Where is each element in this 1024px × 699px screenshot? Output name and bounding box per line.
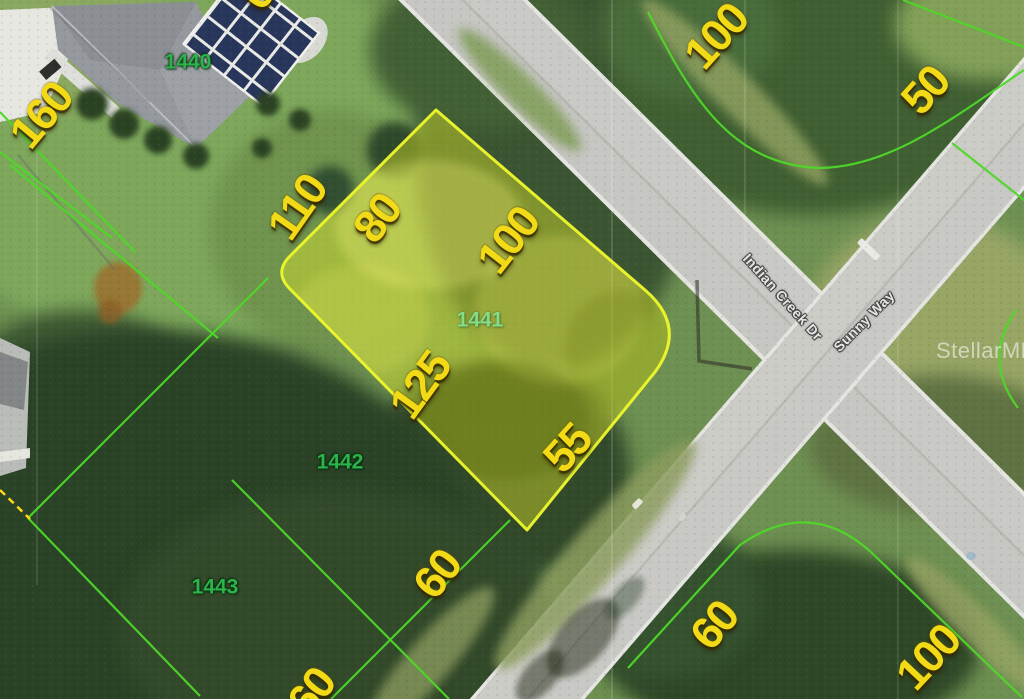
lot-number-label: 1443 <box>192 577 239 598</box>
satellite-base-layer <box>0 0 1024 699</box>
lot-number-label: 1442 <box>317 452 364 473</box>
lot-number-label: 1441 <box>457 310 504 331</box>
aerial-parcel-map: 16011080100100501255560606010060 1440144… <box>0 0 1024 699</box>
stellar-mls-watermark: StellarMLS <box>936 338 1024 364</box>
lot-number-label: 1440 <box>165 52 212 73</box>
lot-number-label: 800 <box>788 0 823 2</box>
